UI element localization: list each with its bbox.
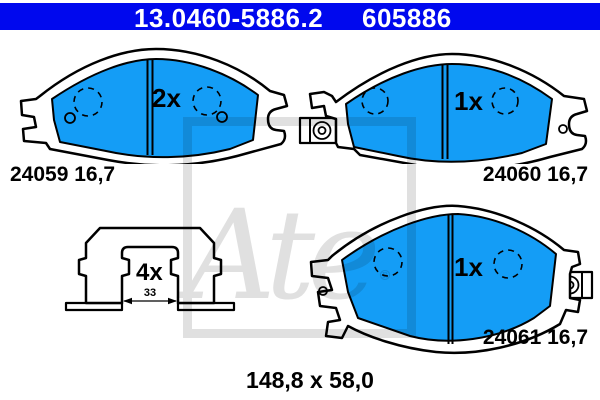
quantity-label: 1x [454,86,483,116]
pad-24060-drawing: 1x [296,44,596,164]
catalog-number: 13.0460-5886.2 [134,3,323,30]
title-bar: 13.0460-5886.2 605886 [0,3,600,30]
quantity-label: 4x [136,259,163,286]
wear-sensor-clip [300,118,336,143]
dimension-value: 33 [144,287,156,299]
quantity-label: 2x [152,83,181,113]
fitting-clip-drawing: 4x 33 [62,216,238,322]
catalog-image: 13.0460-5886.2 605886 2x 1x [0,0,600,400]
part-number-label: 24060 16,7 [458,163,588,187]
pad-24059-drawing: 2x [10,44,300,164]
reference-number: 605886 [362,3,452,30]
pad-dimensions-label: 148,8 x 58,0 [225,367,395,394]
quantity-label: 1x [454,252,483,282]
dimension-arrow-33: 33 [123,287,177,304]
part-number-label: 24061 16,7 [458,326,588,350]
part-number-label: 24059 16,7 [10,163,115,187]
